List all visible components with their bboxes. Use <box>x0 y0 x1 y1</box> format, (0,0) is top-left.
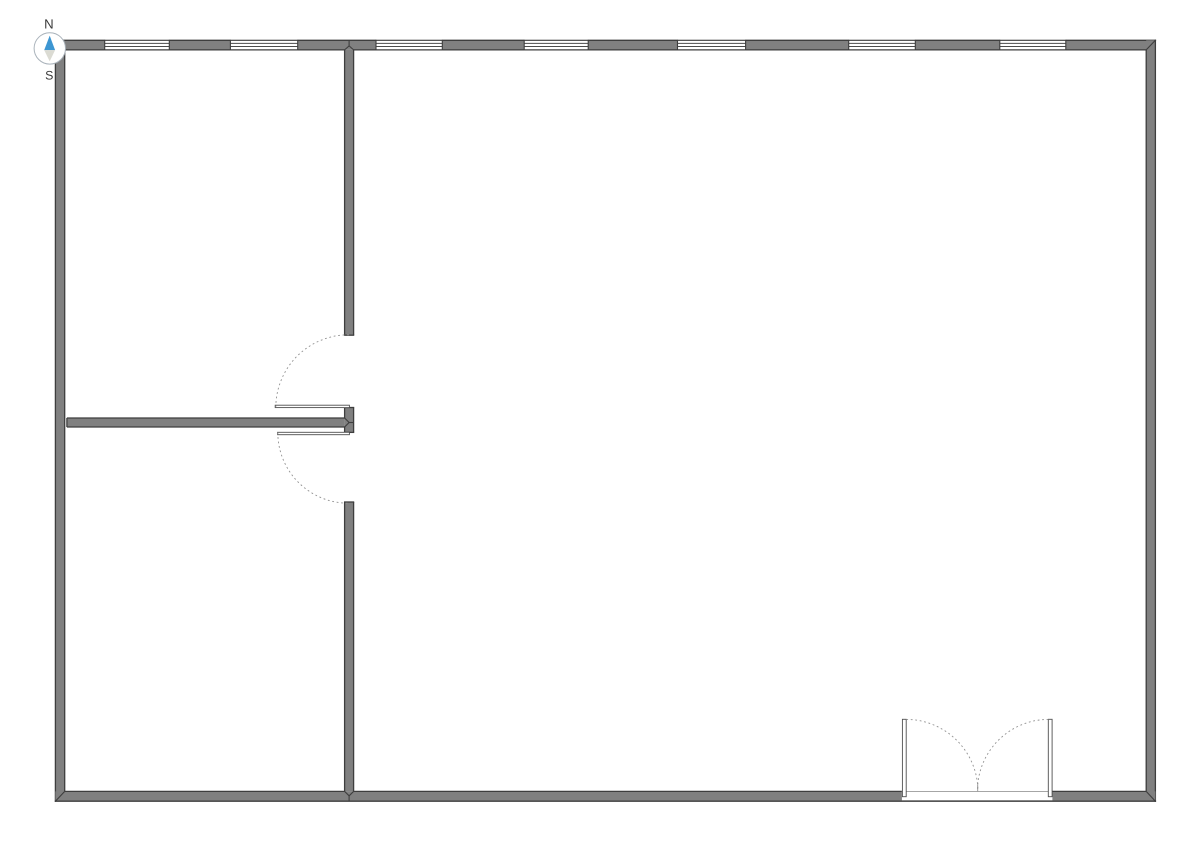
svg-text:S: S <box>45 68 53 82</box>
svg-text:N: N <box>44 17 54 32</box>
